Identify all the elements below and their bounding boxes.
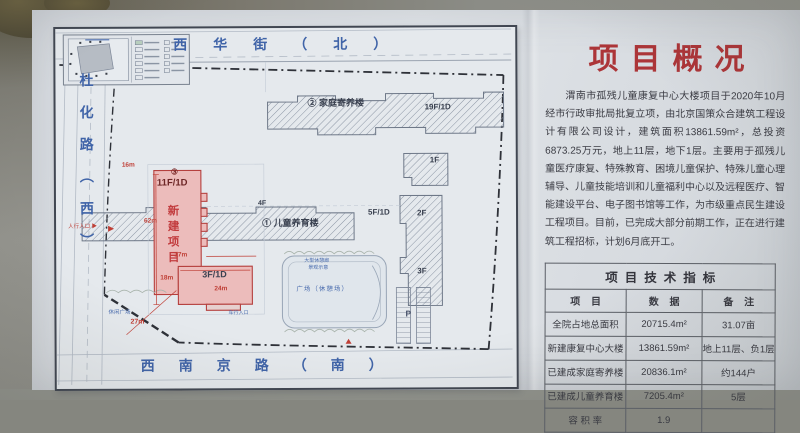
street-label-west: 杜化路（西） xyxy=(79,73,94,265)
cell-item: 已建成家庭寄养楼 xyxy=(545,360,626,384)
col-header-note: 备 注 xyxy=(702,289,775,312)
vehicle-entrance-label: 车行入口 xyxy=(228,311,248,316)
parking-label: P xyxy=(405,309,411,318)
annex-floors: 3F/1D xyxy=(202,270,227,279)
table-title: 项目技术指标 xyxy=(545,263,775,290)
floor-tag-3f: 3F xyxy=(417,267,426,275)
street-label-north: 西华街（北） xyxy=(173,36,413,51)
col-header-data: 数 据 xyxy=(626,289,702,312)
plaza-note-line1: 大型休憩廊 xyxy=(304,259,329,264)
leisure-plaza-label: 休闲广场 xyxy=(108,311,130,317)
cell-item: 新建康复中心大楼 xyxy=(545,336,626,360)
project-sign-board: 西华街（北） 杜化路（西） 西南京路（南） ② 家庭寄养楼 19F/1D 1F … xyxy=(32,10,800,390)
new-building-floors: 11F/1D xyxy=(157,178,188,188)
foster-building-label: ② 家庭寄养楼 xyxy=(308,99,365,108)
cell-item: 已建成儿童养育楼 xyxy=(545,384,626,408)
dimension-62m: 62m xyxy=(144,219,157,226)
floor-tag-1f: 1F xyxy=(430,156,439,164)
overview-panel: 项目概况 渭南市孤残儿童康复中心大楼项目于2020年10月经市行政审批局批复立项… xyxy=(536,18,795,391)
foster-building-floors: 19F/1D xyxy=(425,103,451,111)
inset-site-shape xyxy=(77,44,113,74)
dimension-18m: 18m xyxy=(160,275,173,282)
pedestrian-entrance-label: 人行入口 ▶ xyxy=(68,225,97,231)
cell-item: 全院占地总面积 xyxy=(545,312,626,336)
site-plan-panel: 西华街（北） 杜化路（西） 西南京路（南） ② 家庭寄养楼 19F/1D 1F … xyxy=(53,25,519,391)
table-row: 容 积 率 1.9 xyxy=(545,408,775,433)
cell-note: 5层 xyxy=(702,384,775,408)
table-row: 新建康复中心大楼 13861.59m² 地上11层、负1层 xyxy=(545,336,775,361)
technical-indicators-table: 项目技术指标 项 目 数 据 备 注 全院占地总面积 20715.4m² 31.… xyxy=(544,262,776,433)
nursery-building-label: ① 儿童养育楼 xyxy=(262,219,319,228)
cell-item: 容 积 率 xyxy=(545,408,626,432)
col-header-item: 项 目 xyxy=(545,289,626,312)
cell-data: 13861.59m² xyxy=(626,336,702,360)
plaza-label: 广场（休憩场） xyxy=(296,287,349,294)
dimension-24m: 24m xyxy=(214,286,227,293)
photo-background-left xyxy=(0,0,34,400)
floor-tag-2f: 2F xyxy=(417,209,426,217)
cell-data: 7205.4m² xyxy=(626,384,702,408)
overview-paragraph: 渭南市孤残儿童康复中心大楼项目于2020年10月经市行政审批局批复立项，由北京国… xyxy=(545,88,786,253)
table-row: 已建成儿童养育楼 7205.4m² 5层 xyxy=(545,384,775,409)
foster-building-shape xyxy=(267,92,503,135)
street-label-south: 西南京路（南） xyxy=(141,357,407,372)
cell-note xyxy=(702,408,775,432)
dimension-17m: 17m xyxy=(174,252,187,259)
cell-data: 1.9 xyxy=(626,408,702,432)
page-title: 项目概况 xyxy=(537,34,795,79)
dimension-27m: 27m xyxy=(130,319,144,326)
building-1f-shape xyxy=(404,153,448,185)
floor-tag-4f: 4F xyxy=(258,200,266,207)
table-row: 已建成家庭寄养楼 20836.1m² 约144户 xyxy=(545,360,775,385)
site-plan-drawing xyxy=(55,27,513,385)
cell-note: 地上11层、负1层 xyxy=(702,336,775,360)
cell-note: 约144户 xyxy=(702,360,775,384)
plaza-note-line2: 景观示意 xyxy=(308,266,328,271)
table-header-row: 项 目 数 据 备 注 xyxy=(545,289,775,313)
table-row: 全院占地总面积 20715.4m² 31.07亩 xyxy=(545,312,775,337)
cell-data: 20715.4m² xyxy=(626,312,702,336)
tree-row xyxy=(285,329,375,332)
dimension-16m: 16m xyxy=(122,163,135,170)
nursery-building-floors: 5F/1D xyxy=(368,209,390,217)
cell-data: 20836.1m² xyxy=(626,360,702,384)
tree-row xyxy=(284,251,374,254)
entrance-marker xyxy=(346,339,352,344)
cell-note: 31.07亩 xyxy=(702,312,775,336)
new-building-number: ③ xyxy=(171,168,178,176)
